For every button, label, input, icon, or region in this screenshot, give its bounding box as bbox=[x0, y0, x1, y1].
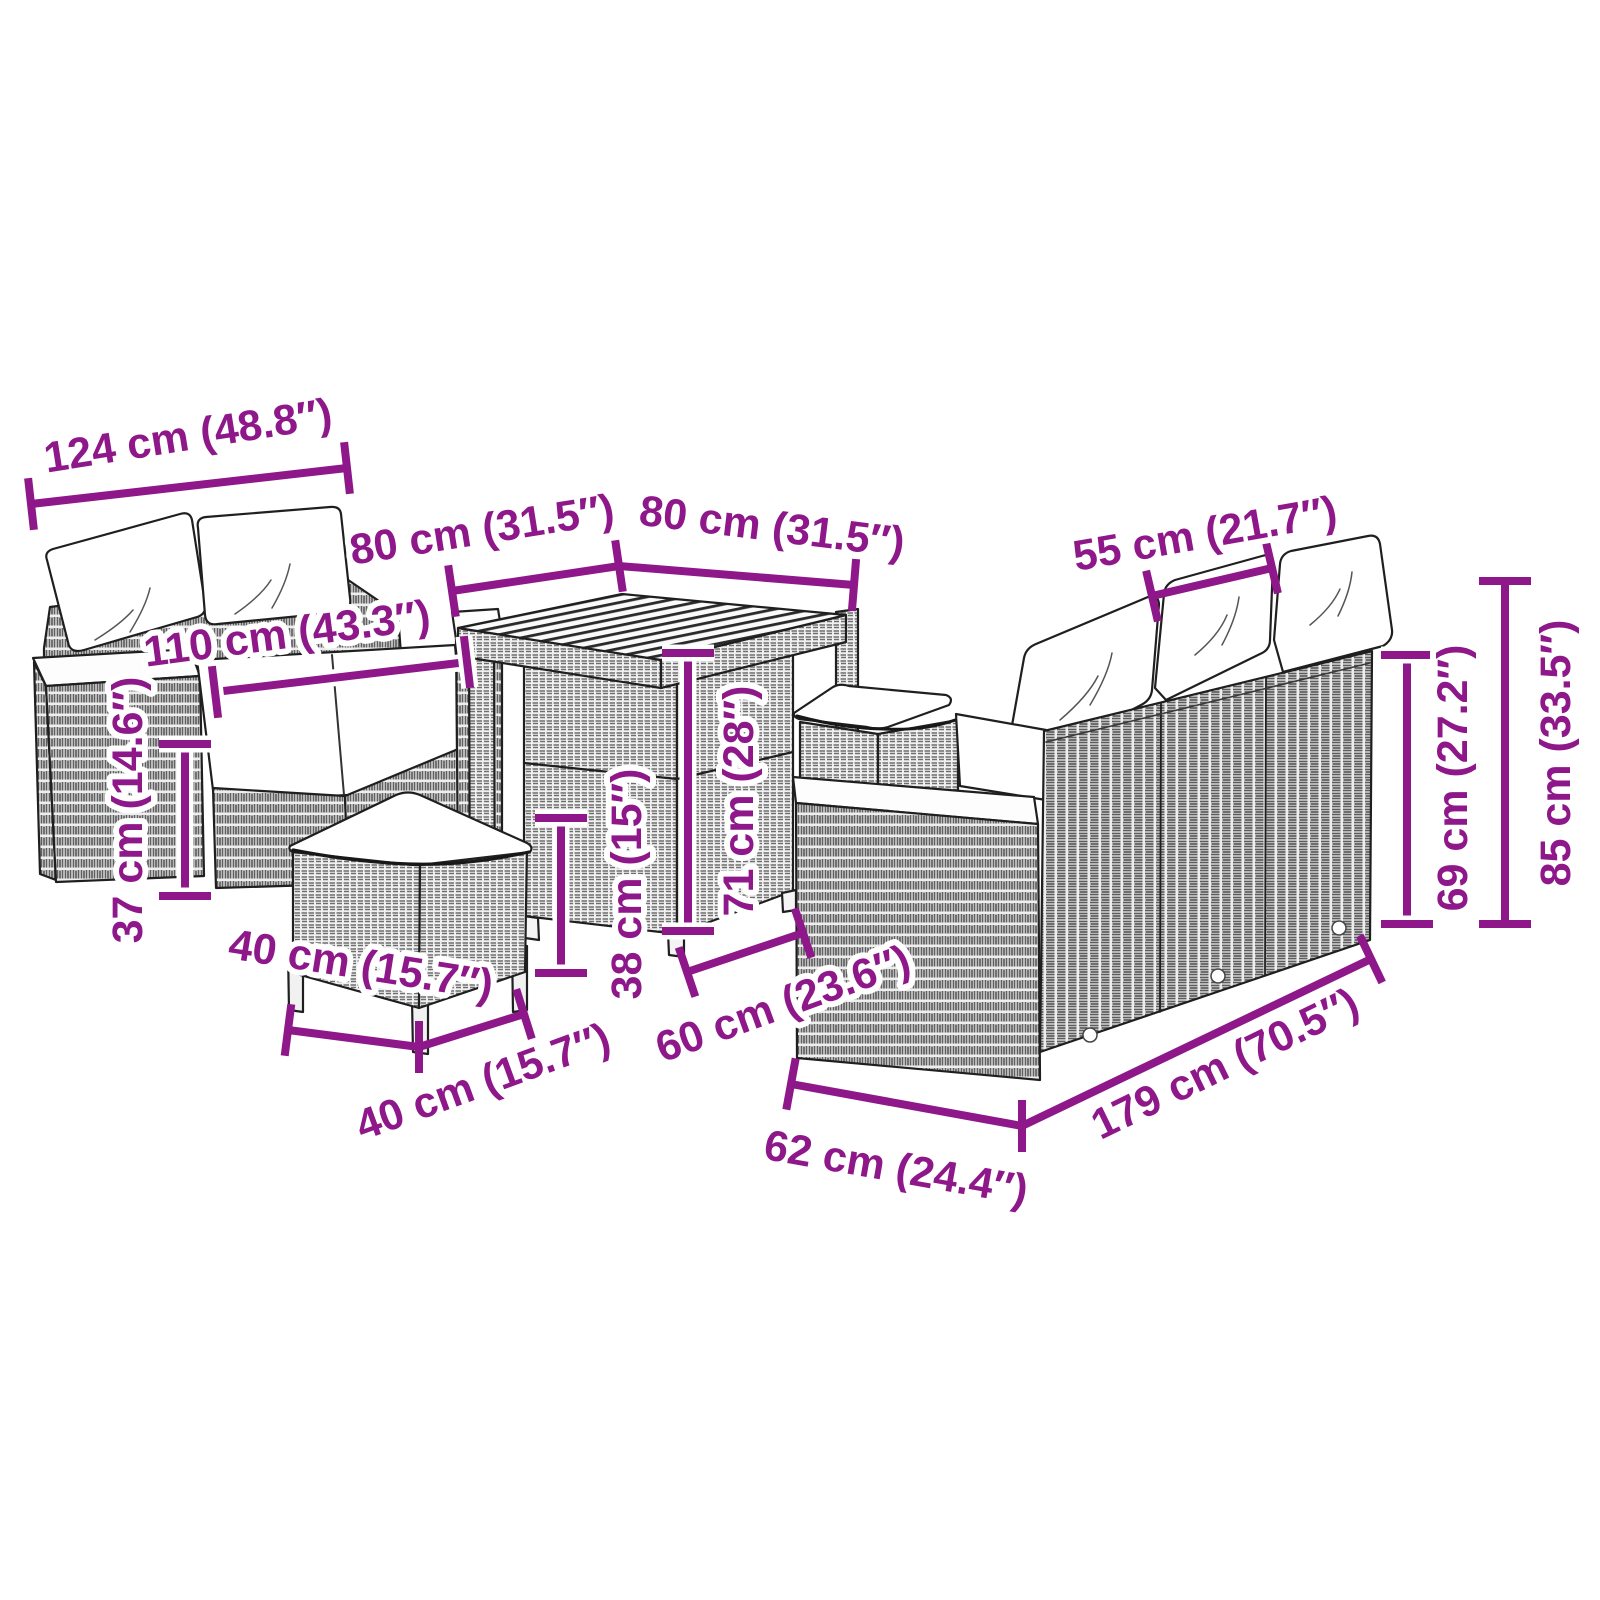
svg-text:85 cm (33.5″): 85 cm (33.5″) bbox=[1532, 620, 1580, 887]
svg-text:38 cm (15″): 38 cm (15″) bbox=[603, 769, 651, 1000]
svg-text:37 cm (14.6″): 37 cm (14.6″) bbox=[104, 677, 152, 944]
svg-text:71 cm (28″): 71 cm (28″) bbox=[715, 686, 763, 917]
svg-text:69 cm (27.2″): 69 cm (27.2″) bbox=[1429, 645, 1477, 912]
